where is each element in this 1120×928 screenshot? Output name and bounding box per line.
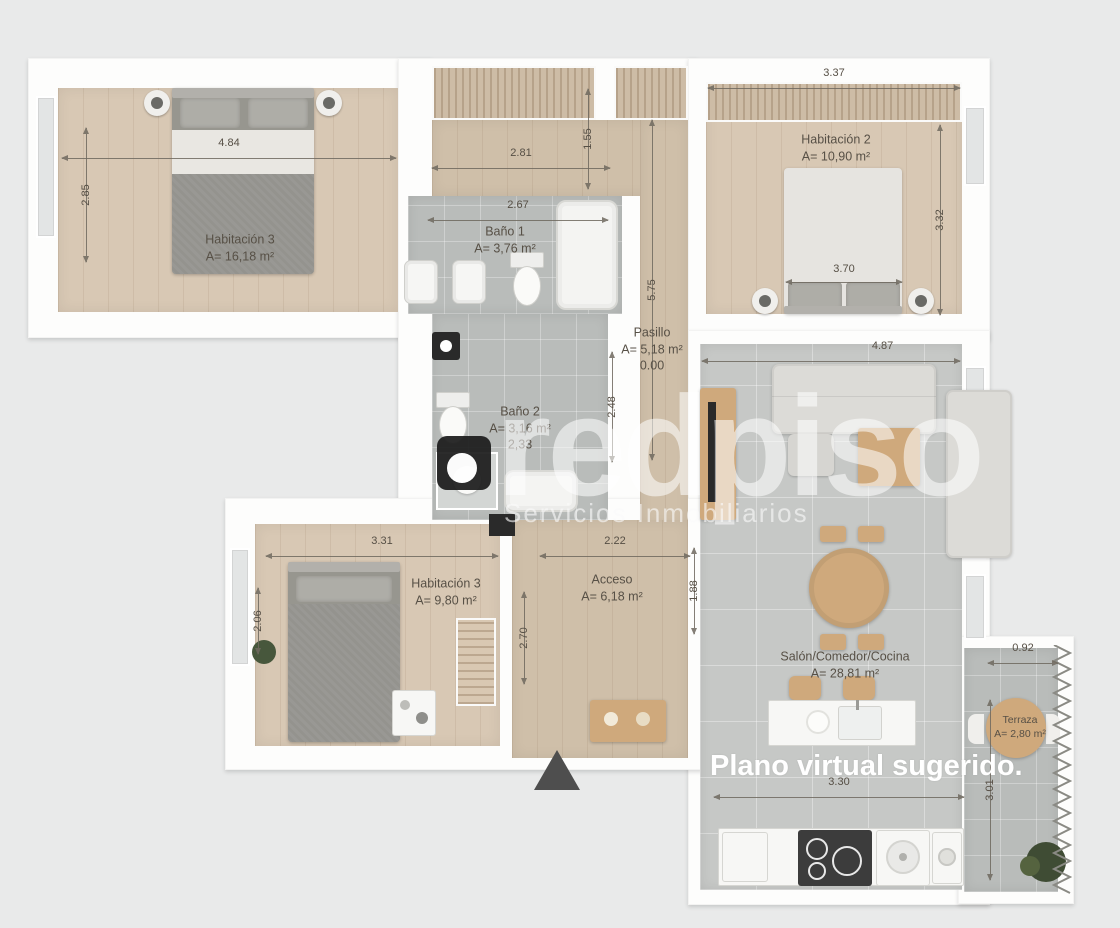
- sink-drain-icon: [899, 853, 907, 861]
- terrace-door: [964, 574, 986, 640]
- bed-duvet: [288, 604, 400, 742]
- dimension-salon-width: 4.87: [702, 355, 960, 367]
- wardrobe-hall-left: [432, 66, 596, 120]
- dimension-line: [786, 282, 902, 283]
- room-area: A= 10,90 m²: [801, 148, 871, 165]
- room-name: Terraza: [994, 714, 1046, 728]
- room-area: A= 6,18 m²: [581, 588, 643, 605]
- dimension-hab2-width: 3.37: [708, 82, 960, 94]
- room-name: Acceso: [581, 572, 643, 589]
- wardrobe-hall-right: [614, 66, 688, 120]
- cooktop-burner-icon: [832, 846, 862, 876]
- cooktop-burner-icon: [808, 862, 826, 880]
- dimension-label: 2.67: [507, 199, 528, 211]
- bed-pillow: [248, 98, 308, 128]
- dimension-label: 3.31: [371, 535, 392, 547]
- ladder-rack: [456, 618, 496, 706]
- room-label-entry: Acceso A= 6,18 m²: [581, 572, 643, 605]
- terrace-chair: [968, 714, 984, 744]
- room-name: Salón/Comedor/Cocina: [780, 649, 909, 666]
- lamp-icon: [759, 295, 771, 307]
- dimension-label: 0.92: [1012, 642, 1033, 654]
- cooktop-burner-icon: [806, 838, 828, 860]
- room-area: A= 5,18 m²: [621, 341, 683, 358]
- room-name: Baño 1: [474, 224, 536, 241]
- entrance-arrow-icon: [534, 750, 580, 790]
- dimension-habb-right: 2.70: [518, 592, 530, 684]
- room-name: Habitación 3: [205, 232, 275, 249]
- dimension-line: [988, 663, 1058, 664]
- room-label-bedroom3-top: Habitación 3 A= 16,18 m²: [205, 232, 275, 265]
- faucet-icon: [856, 700, 859, 710]
- room-area: A= 28,81 m²: [780, 665, 909, 682]
- dimension-label: 4.84: [218, 137, 239, 149]
- dimension-label: 3.37: [823, 67, 844, 79]
- window-bedroom3-top: [36, 96, 56, 238]
- sideboard-item: [604, 712, 618, 726]
- terrace-railing-icon: [1050, 645, 1074, 895]
- washing-machine-door: [938, 848, 956, 866]
- sideboard: [590, 700, 666, 742]
- bed-headboard: [172, 88, 314, 98]
- dimension-label: 1.55: [582, 128, 594, 149]
- redpiso-logo: [437, 436, 491, 490]
- washbasin: [452, 260, 486, 304]
- dimension-label: 4.87: [872, 340, 893, 352]
- dining-chair: [820, 526, 846, 542]
- bed-pillow: [180, 98, 240, 128]
- dining-table: [809, 548, 889, 628]
- dresser-item: [400, 700, 410, 710]
- virtual-plan-caption: Plano virtual sugerido.: [710, 750, 1023, 783]
- dimension-label: 2.70: [518, 627, 530, 648]
- room-label-bedroom3-bottom: Habitación 3 A= 9,80 m²: [411, 576, 481, 609]
- dresser: [392, 690, 436, 736]
- room-label-bedroom2: Habitación 2 A= 10,90 m²: [801, 132, 871, 165]
- window-bedroom3-bottom: [230, 548, 250, 666]
- toilet-bowl: [513, 266, 541, 306]
- dimension-hab3-width: 4.84: [62, 152, 396, 164]
- island-sink: [838, 706, 882, 740]
- watermark-brand-name: redpiso: [496, 376, 981, 518]
- island-sink-basin: [806, 710, 830, 734]
- washbasin: [404, 260, 438, 304]
- washing-machine-door: [440, 340, 452, 352]
- room-name: Habitación 2: [801, 132, 871, 149]
- bed-pillow: [296, 576, 392, 602]
- dimension-terraza-width: 0.92: [988, 657, 1058, 669]
- room-area: A= 3,76 m²: [474, 240, 536, 257]
- dimension-label: 2.85: [80, 184, 92, 205]
- dimension-acceso-width: 2.22: [540, 550, 690, 562]
- room-area: A= 9,80 m²: [411, 592, 481, 609]
- plant-leaf-icon: [1020, 856, 1040, 876]
- room-name: Habitación 3: [411, 576, 481, 593]
- room-label-bathroom1: Baño 1 A= 3,76 m²: [474, 224, 536, 257]
- dimension-label: 3.32: [934, 209, 946, 230]
- dimension-salon-left: 1.88: [688, 548, 700, 634]
- lamp-icon: [915, 295, 927, 307]
- dimension-label: 2.22: [604, 535, 625, 547]
- dimension-line: [702, 361, 960, 362]
- room-name: Pasillo: [621, 324, 683, 341]
- lamp-icon: [323, 97, 335, 109]
- dresser-item: [416, 712, 428, 724]
- dishwasher: [722, 832, 768, 882]
- dimension-line: [540, 556, 690, 557]
- dimension-line: [714, 797, 964, 798]
- dimension-line: [266, 556, 498, 557]
- bed-headboard: [784, 306, 902, 314]
- dimension-hall-depth: 1.55: [582, 89, 594, 189]
- dimension-habb-width: 3.31: [266, 550, 498, 562]
- bed-headboard: [288, 562, 400, 572]
- dimension-label: 2.81: [510, 147, 531, 159]
- dimension-label: 1.88: [688, 580, 700, 601]
- watermark-brand-subtitle: Servicios Inmobiliarios: [504, 498, 809, 529]
- redpiso-logo-dot-icon: [447, 453, 477, 483]
- room-area: A= 2,80 m²: [994, 728, 1046, 742]
- dimension-hab2-bed: 3.70: [786, 276, 902, 288]
- lamp-icon: [151, 97, 163, 109]
- dimension-line: [428, 220, 608, 221]
- dimension-label: 5.75: [646, 279, 658, 300]
- dimension-label: 3.70: [833, 263, 854, 275]
- dimension-line: [62, 158, 396, 159]
- sideboard-item: [636, 712, 650, 726]
- dining-chair: [858, 526, 884, 542]
- dimension-hab2-height: 3.32: [934, 125, 946, 315]
- room-area: A= 16,18 m²: [205, 248, 275, 265]
- window-bedroom2: [964, 106, 986, 186]
- dimension-hab3-height: 2.85: [80, 128, 92, 262]
- room-label-terrace: Terraza A= 2,80 m²: [994, 714, 1046, 742]
- dimension-kitchen-width: 3.30: [714, 791, 964, 803]
- dimension-label: 2.06: [252, 610, 264, 631]
- dimension-habb-left: 2.06: [252, 588, 264, 654]
- room-label-living: Salón/Comedor/Cocina A= 28,81 m²: [780, 649, 909, 682]
- floorplan-canvas: 4.84 2.85 2.81 2.67 3.37 3.32 3.70 1.55 …: [0, 0, 1120, 928]
- dimension-line: [708, 88, 960, 89]
